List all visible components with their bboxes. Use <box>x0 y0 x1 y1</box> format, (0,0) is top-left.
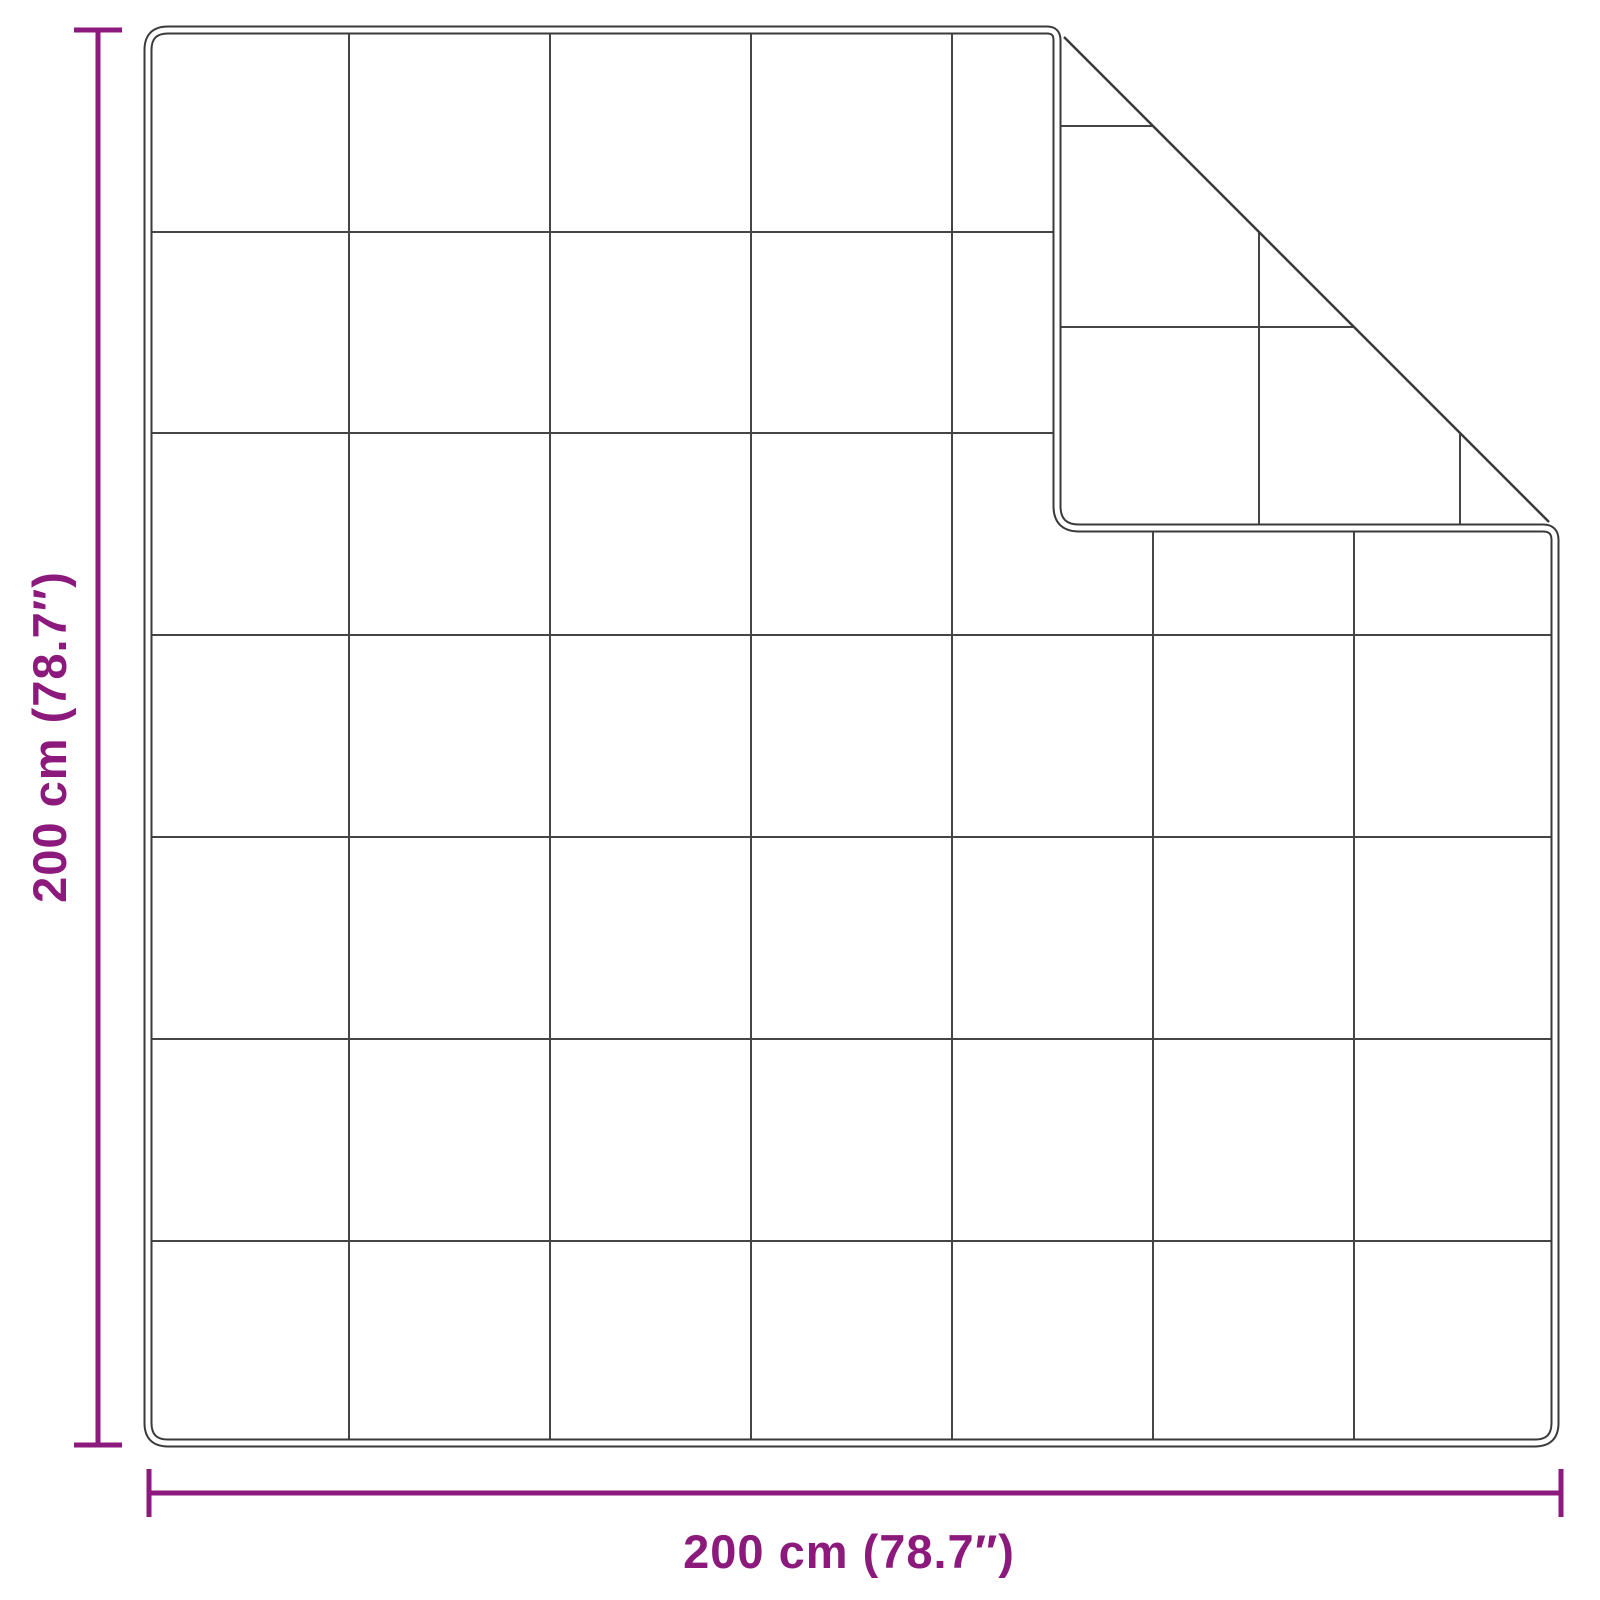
blanket-edge-channel <box>148 30 1555 1443</box>
width-label: 200 cm (78.7″) <box>683 1525 1015 1578</box>
height-label: 200 cm (78.7″) <box>23 571 76 903</box>
fold-crease-line <box>1064 37 1549 522</box>
blanket-outline <box>148 30 1555 1443</box>
blanket-dimension-diagram: 200 cm (78.7″) 200 cm (78.7″) <box>0 0 1600 1600</box>
diagram-canvas: 200 cm (78.7″) 200 cm (78.7″) <box>0 0 1600 1600</box>
horizontal-dimension-line <box>149 1469 1561 1517</box>
quilt-grid <box>152 34 1552 1440</box>
flap-grid <box>1060 126 1460 526</box>
vertical-dimension-line <box>74 30 122 1445</box>
blanket-edge-outer <box>148 30 1555 1443</box>
